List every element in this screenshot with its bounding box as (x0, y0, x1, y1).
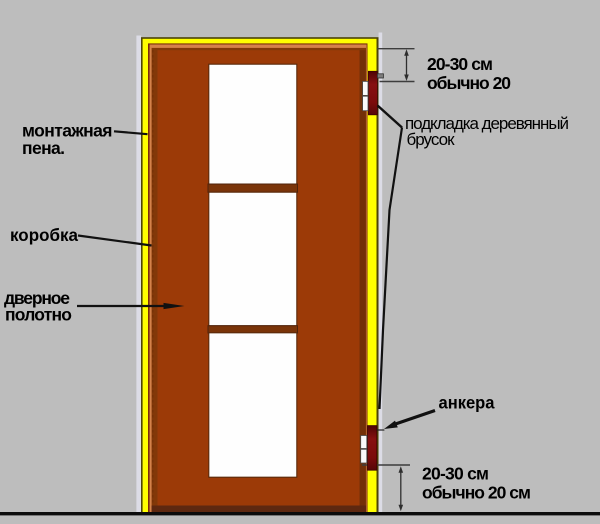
svg-text:коробка: коробка (10, 225, 78, 245)
svg-text:20-30 см: 20-30 см (422, 464, 489, 484)
svg-text:брусок: брусок (407, 130, 456, 149)
svg-text:анкера: анкера (439, 393, 495, 413)
svg-text:обычно 20 см: обычно 20 см (422, 483, 531, 503)
svg-text:20-30 см: 20-30 см (427, 54, 493, 74)
svg-text:полотно: полотно (5, 305, 72, 325)
svg-text:обычно 20: обычно 20 (427, 73, 511, 93)
svg-text:пена.: пена. (22, 138, 65, 158)
